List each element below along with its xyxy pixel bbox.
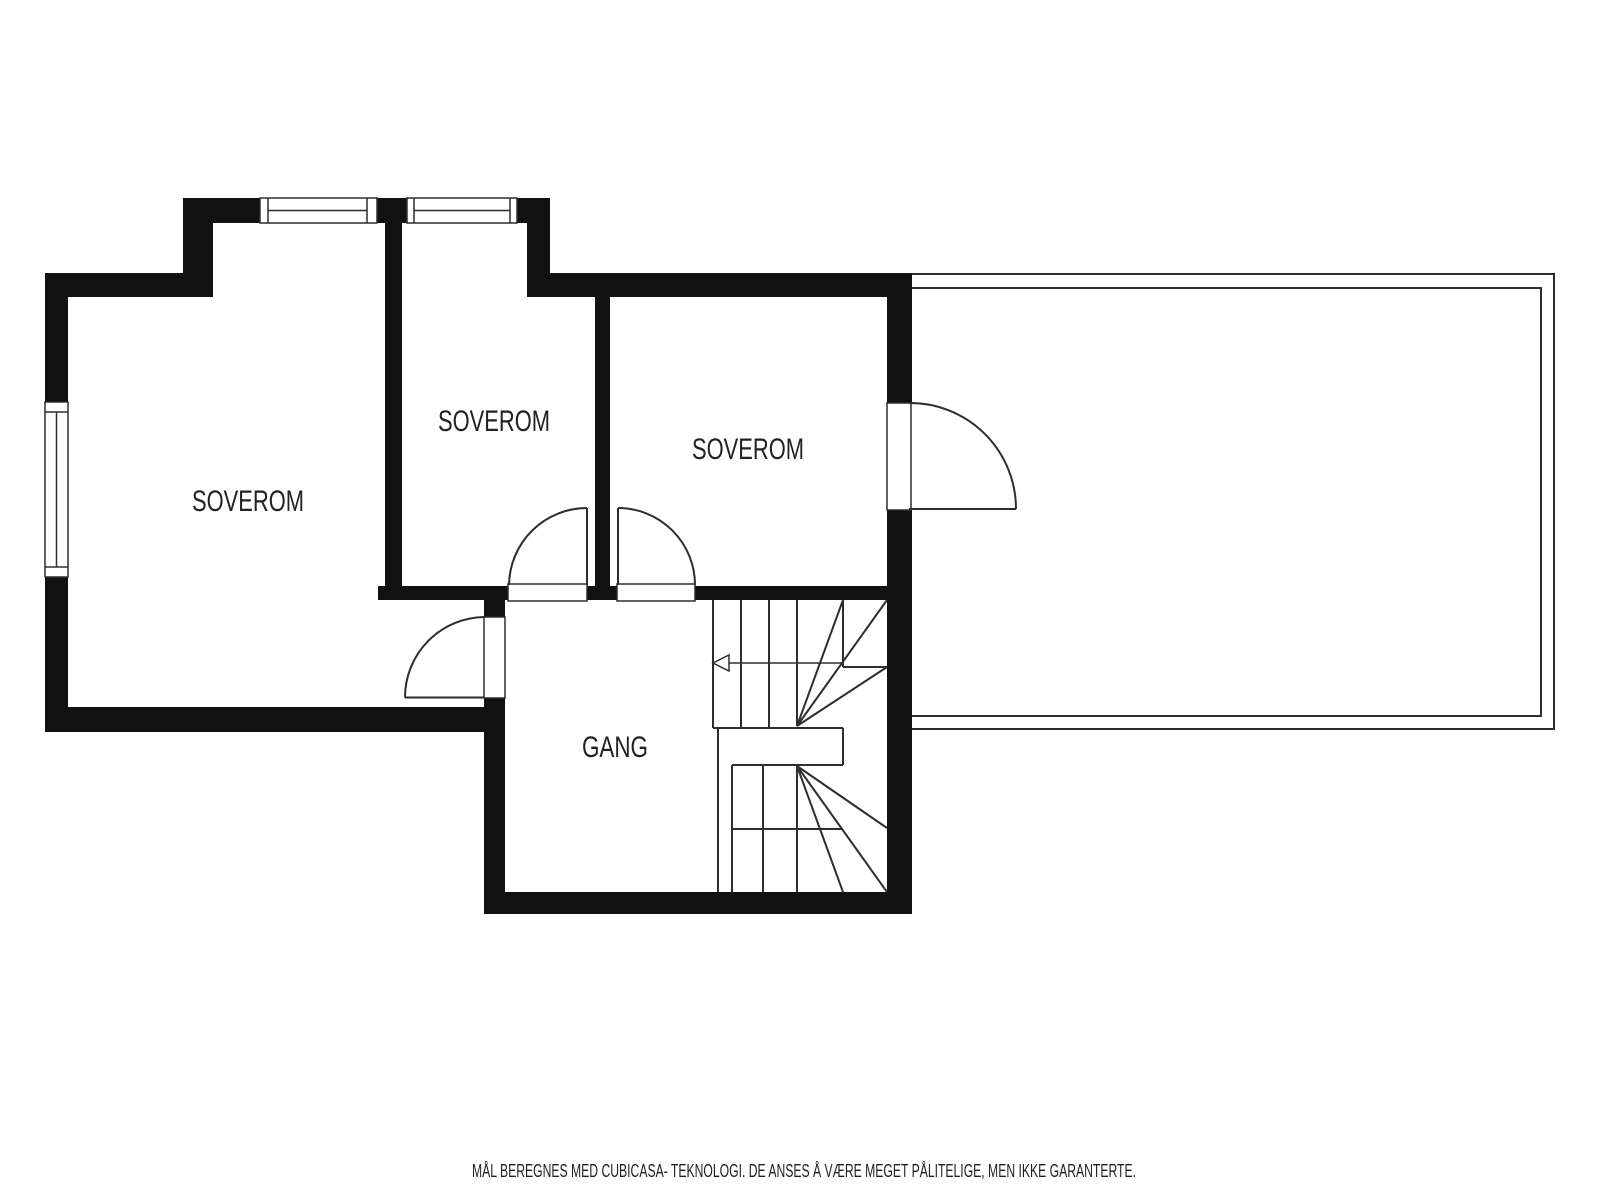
room-label-gang: GANG — [582, 731, 648, 764]
door-opening — [887, 403, 911, 510]
door-opening — [508, 584, 587, 601]
wall-left-upper — [45, 273, 68, 402]
door-opening — [617, 584, 695, 601]
wall-top-left-section — [45, 273, 213, 297]
wall-bottom — [484, 892, 912, 914]
room-label-soverom-left: SOVEROM — [192, 485, 304, 518]
door-opening — [484, 617, 505, 698]
disclaimer-text: MÅL BEREGNES MED CUBICASA- TEKNOLOGI. DE… — [472, 1161, 1136, 1181]
floorplan-page: SOVEROM SOVEROM SOVEROM GANG MÅL BEREGNE… — [0, 0, 1600, 1200]
wall-right-upper — [887, 273, 912, 403]
wall-gang-left-upper — [484, 586, 505, 617]
wall-between-middle-right-bedroom — [595, 273, 610, 600]
wall-right-lower — [887, 510, 912, 914]
window-left-bedroom-top — [260, 198, 377, 223]
wall-between-left-middle-bedroom — [385, 223, 402, 600]
window-left-wall — [45, 402, 68, 577]
floorplan-canvas: SOVEROM SOVEROM SOVEROM GANG MÅL BEREGNE… — [0, 0, 1600, 1200]
wall-bedrooms-bottom-segment — [695, 586, 887, 600]
wall-step-bar-right — [527, 198, 550, 297]
wall-top-between-windows — [377, 198, 407, 223]
room-label-soverom-right: SOVEROM — [692, 433, 804, 466]
wall-bedrooms-bottom-segment — [587, 586, 617, 600]
wall-left-bedroom-bottom — [45, 707, 505, 732]
room-label-soverom-middle: SOVEROM — [438, 405, 550, 438]
window-middle-bedroom-top — [407, 198, 517, 223]
